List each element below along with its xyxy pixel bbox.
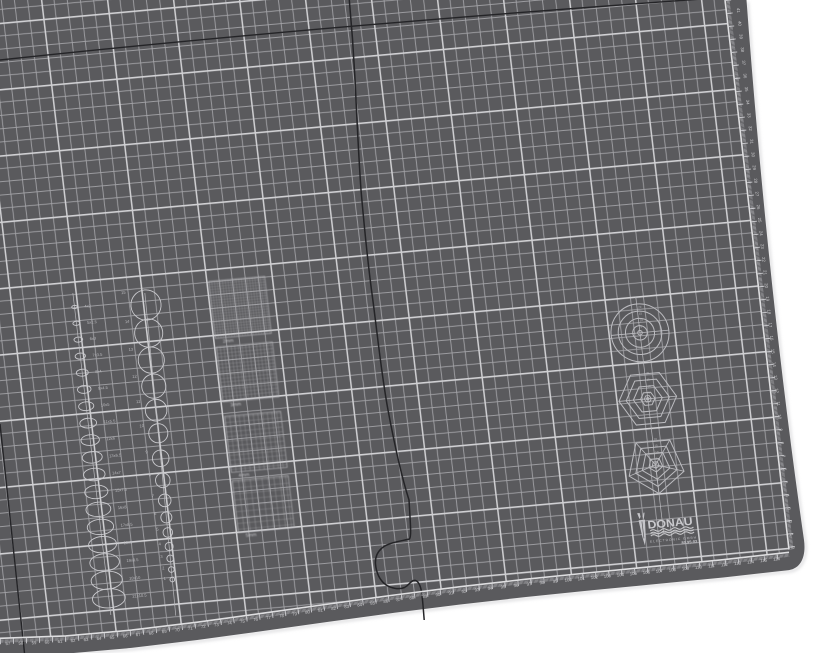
svg-text:103: 103: [603, 573, 611, 579]
svg-text:106: 106: [643, 569, 651, 575]
svg-text:112: 112: [721, 562, 729, 568]
svg-text:107: 107: [656, 568, 664, 574]
svg-text:104: 104: [616, 572, 624, 578]
svg-text:4mm: 4mm: [238, 472, 249, 479]
svg-text:105: 105: [629, 571, 637, 577]
svg-text:108: 108: [669, 567, 677, 573]
svg-text:100: 100: [564, 577, 572, 583]
svg-text:111: 111: [708, 563, 716, 569]
svg-text:116: 116: [773, 556, 781, 562]
svg-text:10x5: 10x5: [101, 402, 111, 408]
svg-text:7x3.5: 7x3.5: [92, 352, 103, 358]
svg-text:3mm: 3mm: [230, 401, 241, 408]
svg-text:2mm: 2mm: [223, 338, 234, 345]
svg-text:102: 102: [590, 574, 598, 580]
svg-text:110: 110: [695, 564, 703, 570]
svg-text:114: 114: [747, 559, 755, 565]
svg-text:18x9: 18x9: [123, 539, 133, 545]
svg-text:101: 101: [577, 576, 585, 582]
svg-text:113: 113: [734, 560, 742, 566]
svg-text:16x8: 16x8: [117, 504, 127, 510]
svg-text:20x10: 20x10: [129, 575, 141, 581]
svg-text:109: 109: [682, 566, 690, 572]
svg-text:12x6: 12x6: [106, 435, 116, 441]
svg-text:5x2.5: 5x2.5: [87, 319, 98, 325]
svg-text:5mm: 5mm: [245, 532, 256, 539]
svg-text:14x7: 14x7: [112, 470, 122, 476]
svg-text:115: 115: [760, 558, 768, 564]
svg-text:9x4.5: 9x4.5: [98, 385, 109, 391]
